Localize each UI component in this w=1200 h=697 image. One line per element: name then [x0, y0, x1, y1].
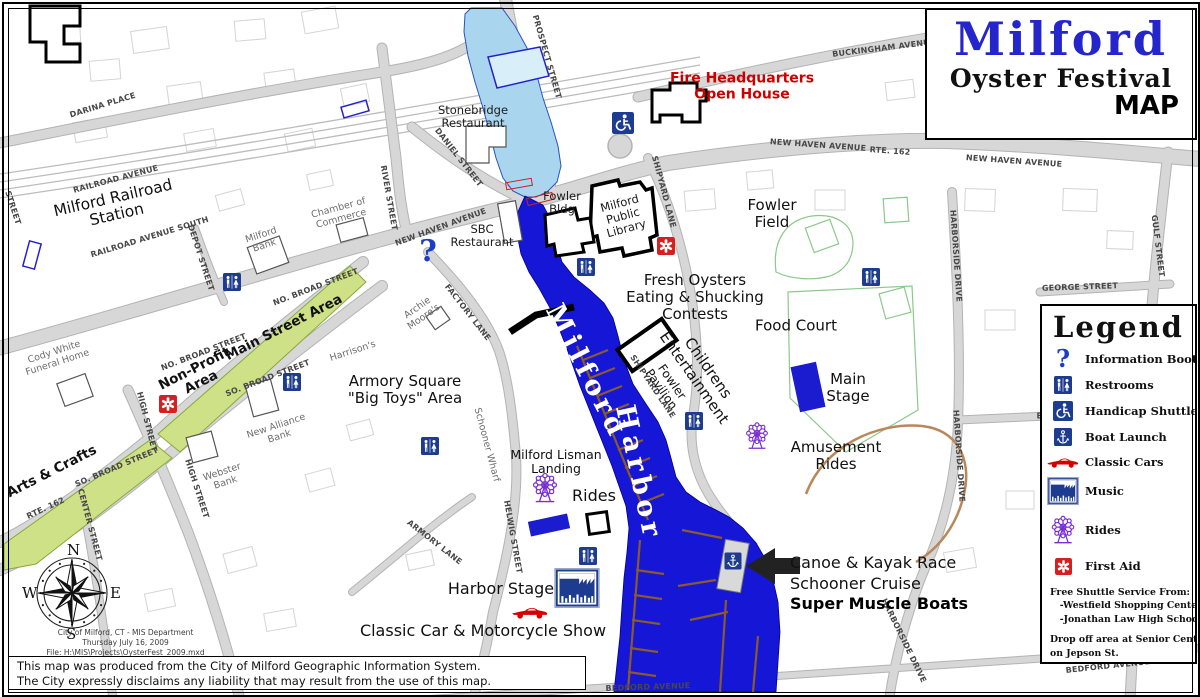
compass-n: N — [67, 541, 80, 559]
legend-item-label: Classic Cars — [1080, 455, 1163, 469]
legend-title: Legend — [1042, 310, 1195, 344]
legend-item: Music — [1046, 474, 1195, 508]
credits-line: City of Milford, CT - MIS Department — [28, 628, 223, 638]
legend: Legend ?Information BoothRestroomsHandic… — [1040, 304, 1197, 664]
music-icon — [1046, 477, 1080, 505]
legend-notes: Free Shuttle Service From: -Westfield Sh… — [1042, 580, 1195, 664]
legend-item-label: Rides — [1080, 523, 1121, 537]
credits-line: Thursday July 16, 2009 — [28, 638, 223, 648]
legend-note: Free Shuttle Service From: — [1050, 586, 1189, 599]
legend-note: Police - 1st Floor Fowler Building — [1050, 660, 1189, 664]
legend-item-label: Handicap Shuttle — [1080, 404, 1197, 418]
compass-e: E — [110, 584, 121, 602]
disclaimer-line: The City expressly disclaims any liabili… — [17, 674, 585, 689]
map-word: MAP — [927, 91, 1195, 121]
legend-note: on Jepson St. — [1050, 647, 1189, 660]
legend-note: -Westfield Shopping Center — [1050, 599, 1189, 612]
legend-item-label: Music — [1080, 484, 1124, 498]
firstaid-icon — [1046, 558, 1080, 575]
legend-item: First Aid — [1046, 552, 1195, 580]
ferris-icon — [1046, 515, 1080, 545]
legend-item-label: Information Booth — [1080, 352, 1197, 366]
legend-item-label: Restrooms — [1080, 378, 1154, 392]
page-subtitle: Oyster Festival — [927, 64, 1195, 93]
legend-item: Classic Cars — [1046, 450, 1195, 474]
legend-note: Drop off area at Senior Center — [1050, 633, 1189, 646]
legend-item-label: First Aid — [1080, 559, 1141, 573]
car-icon — [1046, 455, 1080, 469]
handicap-icon — [1046, 401, 1080, 421]
legend-item: Boat Launch — [1046, 424, 1195, 450]
disclaimer-line: This map was produced from the City of M… — [17, 659, 585, 674]
compass-w: W — [22, 584, 37, 602]
restroom-icon — [1046, 376, 1080, 394]
map-title-box: Milford Oyster Festival MAP — [925, 8, 1197, 140]
legend-item: Restrooms — [1046, 372, 1195, 398]
festival-map-page: DARINA PLACEPROSPECT STREETRAILROAD AVEN… — [0, 0, 1200, 697]
legend-note — [1050, 626, 1189, 633]
legend-item-label: Boat Launch — [1080, 430, 1167, 444]
info-icon: ? — [1046, 347, 1080, 371]
disclaimer-box: This map was produced from the City of M… — [8, 656, 586, 690]
map-credits: City of Milford, CT - MIS DepartmentThur… — [28, 628, 223, 657]
page-title: Milford — [927, 16, 1195, 63]
legend-items: ?Information BoothRestroomsHandicap Shut… — [1042, 346, 1195, 580]
legend-item: ?Information Booth — [1046, 346, 1195, 372]
legend-item: Rides — [1046, 508, 1195, 552]
legend-item: Handicap Shuttle — [1046, 398, 1195, 424]
legend-note: -Jonathan Law High School — [1050, 613, 1189, 626]
anchor-icon — [1046, 428, 1080, 446]
